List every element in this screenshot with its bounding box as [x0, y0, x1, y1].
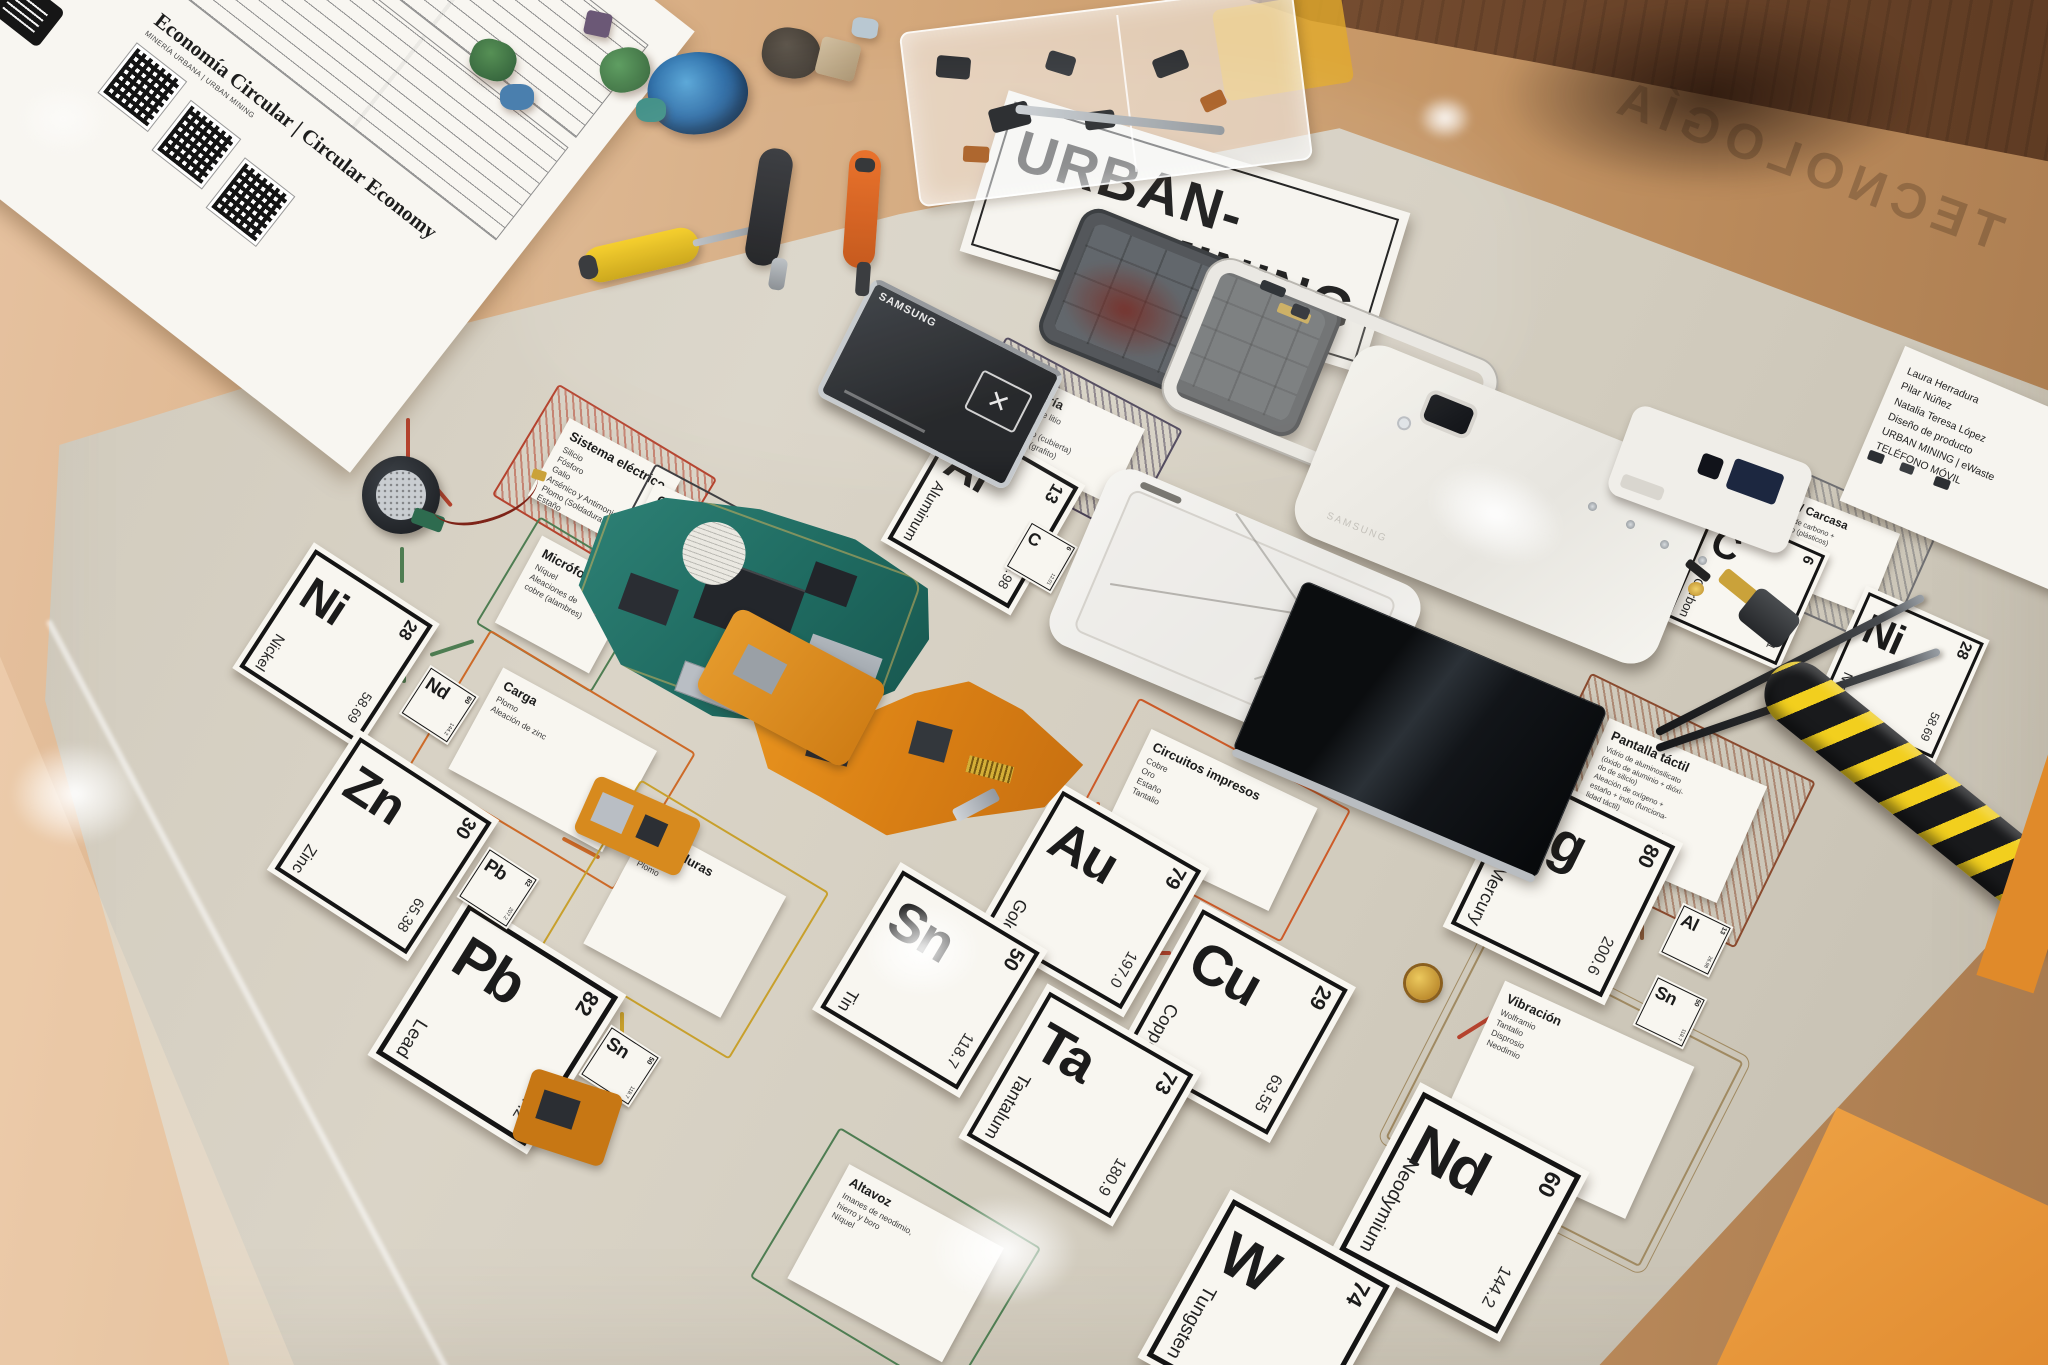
atomic-mass: 26.98 [1702, 955, 1713, 969]
atomic-number: 28 [1951, 639, 1975, 662]
atomic-number: 74 [1340, 1276, 1376, 1311]
element-name: Nickel [251, 631, 288, 675]
element-symbol: Ta [1026, 1014, 1105, 1092]
element-symbol: W [1209, 1223, 1287, 1304]
screw-icon [1698, 556, 1707, 565]
gold-screw [1688, 582, 1704, 596]
qr-code [207, 159, 294, 246]
stone-blue-small [500, 84, 534, 110]
atomic-mass: 118.7 [623, 1084, 635, 1098]
vibration-motor [1406, 966, 1440, 1000]
atomic-mass: 207.2 [501, 906, 513, 921]
atomic-number: 6 [1798, 552, 1816, 566]
screw-icon [1588, 502, 1597, 511]
qr-code [153, 101, 240, 188]
element-symbol: Al [1678, 912, 1701, 935]
element-symbol: Sn [603, 1034, 632, 1062]
element-symbol: Pb [481, 856, 510, 884]
atomic-number: 50 [997, 944, 1028, 975]
sensor [1696, 452, 1724, 480]
stone-pale [851, 16, 880, 39]
atomic-mass: 63.55 [1250, 1071, 1286, 1116]
element-symbol: C [1024, 529, 1043, 550]
atomic-number: 60 [1532, 1166, 1568, 1201]
atomic-number: 50 [1692, 998, 1702, 1008]
atomic-mass: 12.01 [1045, 572, 1056, 586]
light-reflection [18, 84, 108, 154]
component [535, 1090, 580, 1130]
atomic-number: 28 [394, 616, 422, 644]
connector [590, 791, 634, 833]
atomic-number: 6 [1064, 545, 1072, 552]
element-symbol: Cu [1180, 931, 1270, 1015]
screw-icon [1626, 520, 1635, 529]
shield-small [733, 644, 788, 695]
atomic-number: 80 [1632, 840, 1664, 872]
element-name: Zinc [287, 840, 320, 876]
flex-component [909, 720, 953, 762]
camera-lens [1725, 458, 1785, 506]
element-symbol: Zn [335, 758, 414, 834]
atomic-mass: 118.7 [942, 1029, 977, 1071]
exhibit-photo: TECNOLOGÍA Sistema eléctricoSilicio Fósf… [0, 0, 2048, 1365]
atomic-number: 50 [645, 1055, 655, 1065]
light-reflection [10, 742, 140, 846]
atomic-number: 30 [450, 812, 480, 842]
atomic-mass: 58.69 [344, 689, 375, 726]
element-name: Tin [833, 985, 863, 1016]
atomic-mass: 58.69 [1918, 710, 1943, 743]
atomic-number: 73 [1149, 1066, 1181, 1098]
atomic-number: 82 [569, 986, 604, 1020]
atomic-number: 13 [1718, 926, 1728, 936]
cover-brand: SAMSUNG [1325, 510, 1389, 544]
atomic-number: 13 [1040, 480, 1068, 507]
did-logo [0, 0, 65, 48]
stone-purple-cube [583, 10, 613, 39]
atomic-number: 60 [463, 694, 473, 704]
cover-glare [1414, 446, 1578, 582]
atomic-number: 29 [1304, 981, 1336, 1013]
component [635, 814, 668, 847]
element-symbol: Pb [442, 928, 534, 1016]
screw-icon [1660, 540, 1669, 549]
light-reflection [1418, 96, 1472, 140]
element-symbol: Au [1040, 812, 1127, 893]
atomic-number: 79 [1159, 862, 1190, 893]
atomic-mass: 144.2 [442, 722, 454, 737]
light-reflection [862, 902, 982, 998]
atomic-mass: 65.38 [393, 895, 427, 935]
atomic-number: 82 [523, 877, 533, 887]
element-symbol: Ni [293, 569, 356, 632]
atomic-mass: 144.2 [1477, 1263, 1516, 1312]
atomic-mass: 200.6 [1583, 933, 1618, 978]
bracket-tab [1619, 473, 1665, 501]
element-symbol: Sn [1652, 984, 1679, 1010]
atomic-mass: 118.7 [1676, 1027, 1687, 1041]
element-symbol: Nd [422, 674, 452, 703]
element-name: Mercury [1464, 862, 1511, 930]
element-name: Lead [391, 1015, 432, 1062]
atomic-mass: 197.0 [1105, 948, 1140, 991]
light-reflection [928, 1196, 1078, 1306]
atomic-mass: 180.9 [1093, 1154, 1130, 1199]
gold-connector [965, 756, 1014, 784]
connector-dash [400, 547, 404, 583]
glass-sheen [520, 60, 1520, 480]
speaker [362, 456, 440, 534]
